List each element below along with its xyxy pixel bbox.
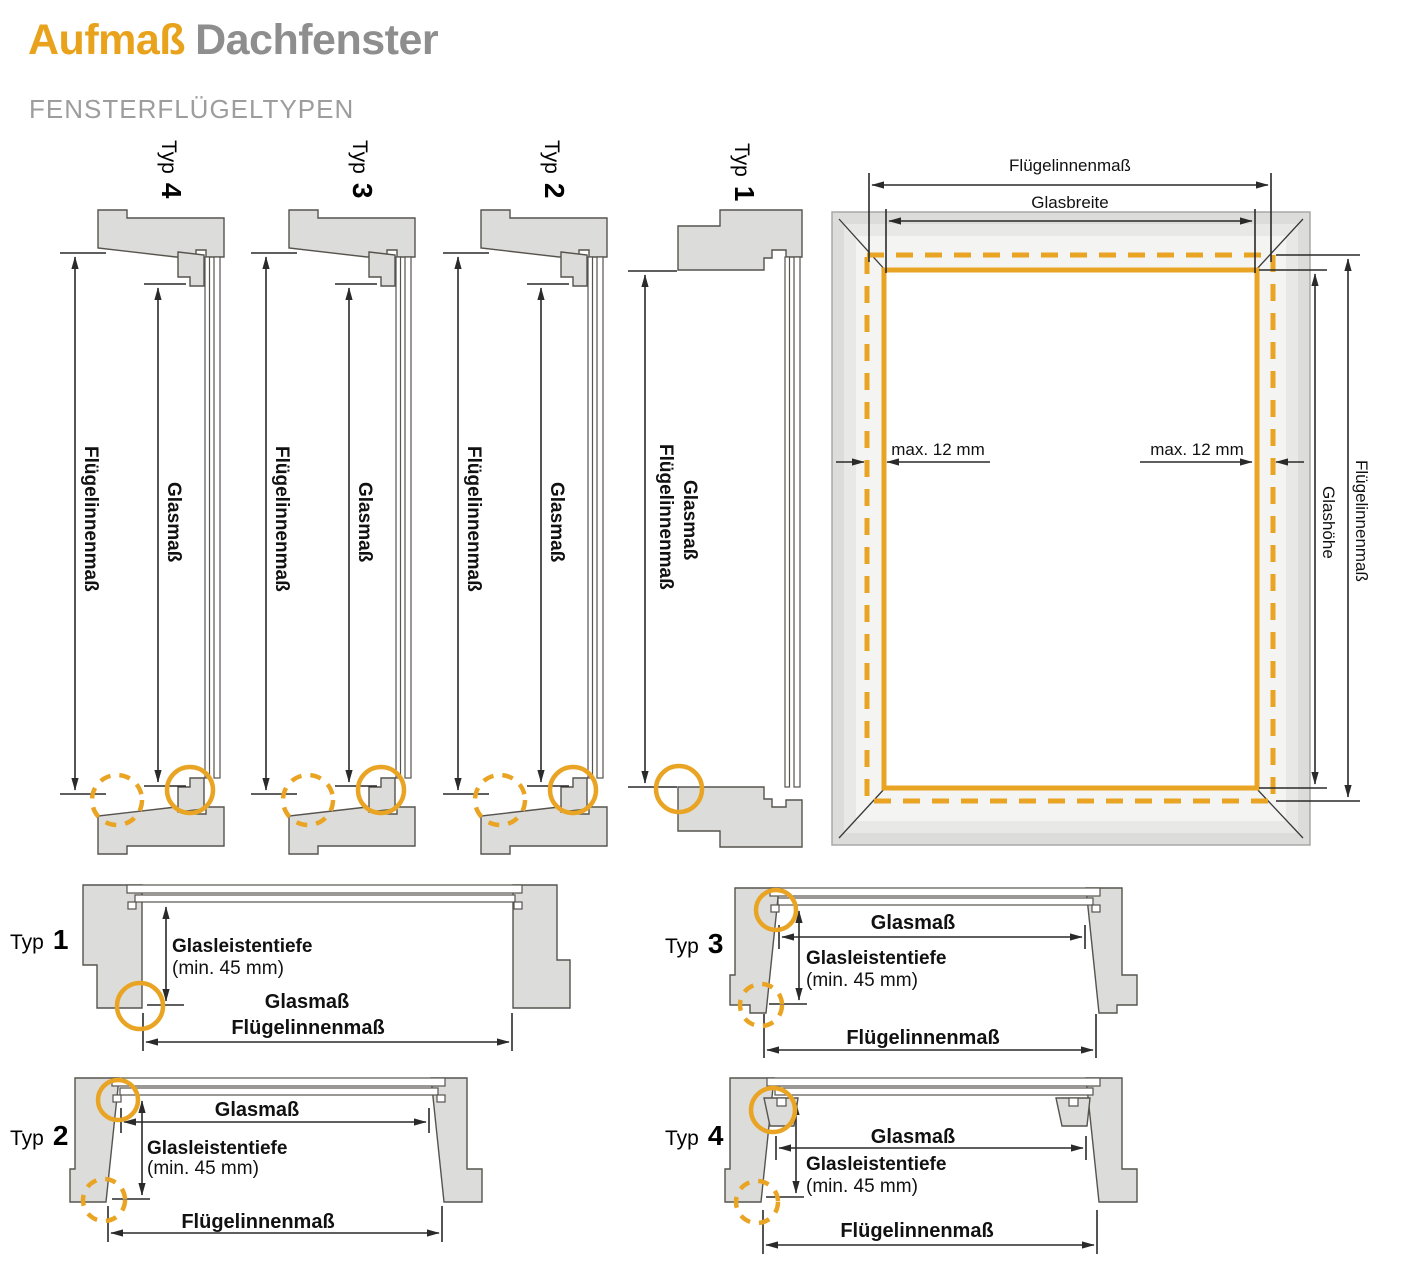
- front-fluegelinnenmass-top-label: Flügelinnenmaß: [1009, 156, 1131, 176]
- page-subtitle: FENSTERFLÜGELTYPEN: [29, 94, 354, 125]
- typ3-detail-fluegelinnenmass-label: Flügelinnenmaß: [846, 1027, 999, 1050]
- typ2-detail-fluegelinnenmass-label: Flügelinnenmaß: [181, 1211, 334, 1234]
- typ2-fluegelinnenmass-label: Flügelinnenmaß: [462, 446, 484, 592]
- typ4-detail-glasmass-label: Glasmaß: [871, 1126, 955, 1149]
- typ2-detail-label: Typ2: [10, 1120, 68, 1152]
- front-view-drawing: [832, 173, 1360, 845]
- typ4-label: Typ4: [155, 140, 187, 198]
- typ4-detail-fluegelinnenmass-label: Flügelinnenmaß: [840, 1220, 993, 1243]
- typ3-glasmass-label: Glasmaß: [353, 482, 375, 562]
- typ2-glasleistentiefe-label: Glasleistentiefe: [147, 1138, 287, 1160]
- front-max12-left-label: max. 12 mm: [891, 440, 985, 460]
- front-fluegelinnenmass-right-label: Flügelinnenmaß: [1351, 460, 1371, 582]
- diagram-canvas: [0, 0, 1413, 1276]
- front-max12-right-label: max. 12 mm: [1150, 440, 1244, 460]
- typ3-glasleistentiefe-label: Glasleistentiefe: [806, 948, 946, 970]
- page-title-accent: Aufmaß: [28, 16, 185, 64]
- typ4-fluegelinnenmass-label: Flügelinnenmaß: [79, 446, 101, 592]
- typ1-detail-glasmass-label: Glasmaß: [265, 991, 349, 1014]
- typ4-glasmass-label: Glasmaß: [162, 482, 184, 562]
- typ2-label: Typ2: [538, 140, 570, 198]
- typ3-detail-glasmass-label: Glasmaß: [871, 912, 955, 935]
- page-title: AufmaßDachfenster: [28, 16, 438, 65]
- page-title-rest: Dachfenster: [195, 16, 438, 64]
- typ1-detail-fluegelinnenmass-label: Flügelinnenmaß: [231, 1017, 384, 1040]
- typ3-fluegelinnenmass-label: Flügelinnenmaß: [270, 446, 292, 592]
- typ2-glasmass-label: Glasmaß: [545, 482, 567, 562]
- typ1-min45-label: (min. 45 mm): [172, 958, 284, 980]
- front-glashoehe-label: Glashöhe: [1318, 486, 1338, 559]
- typ3-detail-label: Typ3: [665, 928, 723, 960]
- front-glasbreite-label: Glasbreite: [1031, 193, 1108, 213]
- typ2-detail-glasmass-label: Glasmaß: [215, 1099, 299, 1122]
- typ1-detail-label: Typ1: [10, 924, 68, 956]
- aufmass-dachfenster-page: AufmaßDachfenster FENSTERFLÜGELTYPEN Typ…: [0, 0, 1413, 1276]
- typ1-glasmass-label: Glasmaß: [678, 480, 700, 560]
- typ3-label: Typ3: [346, 140, 378, 198]
- typ3-min45-label: (min. 45 mm): [806, 970, 918, 992]
- typ4-min45-label: (min. 45 mm): [806, 1176, 918, 1198]
- typ1-label: Typ1: [728, 143, 760, 201]
- typ1-fluegelinnenmass-label: Flügelinnenmaß: [654, 444, 676, 590]
- typ2-min45-label: (min. 45 mm): [147, 1158, 259, 1180]
- typ1-glasleistentiefe-label: Glasleistentiefe: [172, 936, 312, 958]
- typ4-detail-label: Typ4: [665, 1120, 723, 1152]
- typ4-glasleistentiefe-label: Glasleistentiefe: [806, 1154, 946, 1176]
